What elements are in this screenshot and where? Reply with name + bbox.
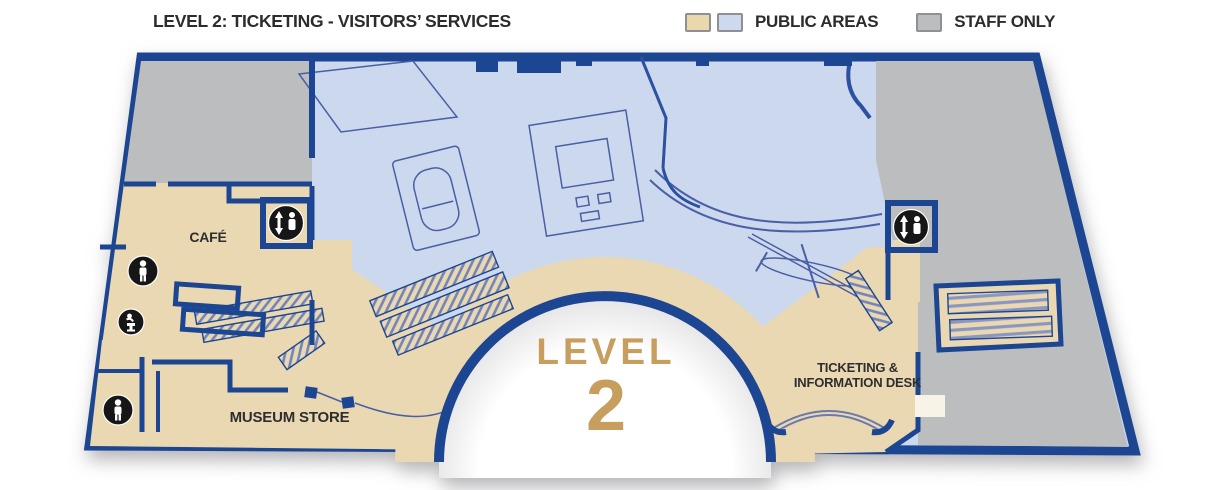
floorplan-page: LEVEL 2: TICKETING - VISITORS’ SERVICES … — [0, 0, 1226, 490]
drinking-fountain-icon — [118, 309, 144, 335]
restroom-icon — [103, 395, 133, 425]
floorplan-map — [0, 0, 1226, 490]
elevator-icon — [894, 210, 929, 245]
staff-area-top-left — [124, 61, 312, 201]
elevator-icon — [269, 206, 304, 241]
restroom-icon — [128, 256, 158, 286]
